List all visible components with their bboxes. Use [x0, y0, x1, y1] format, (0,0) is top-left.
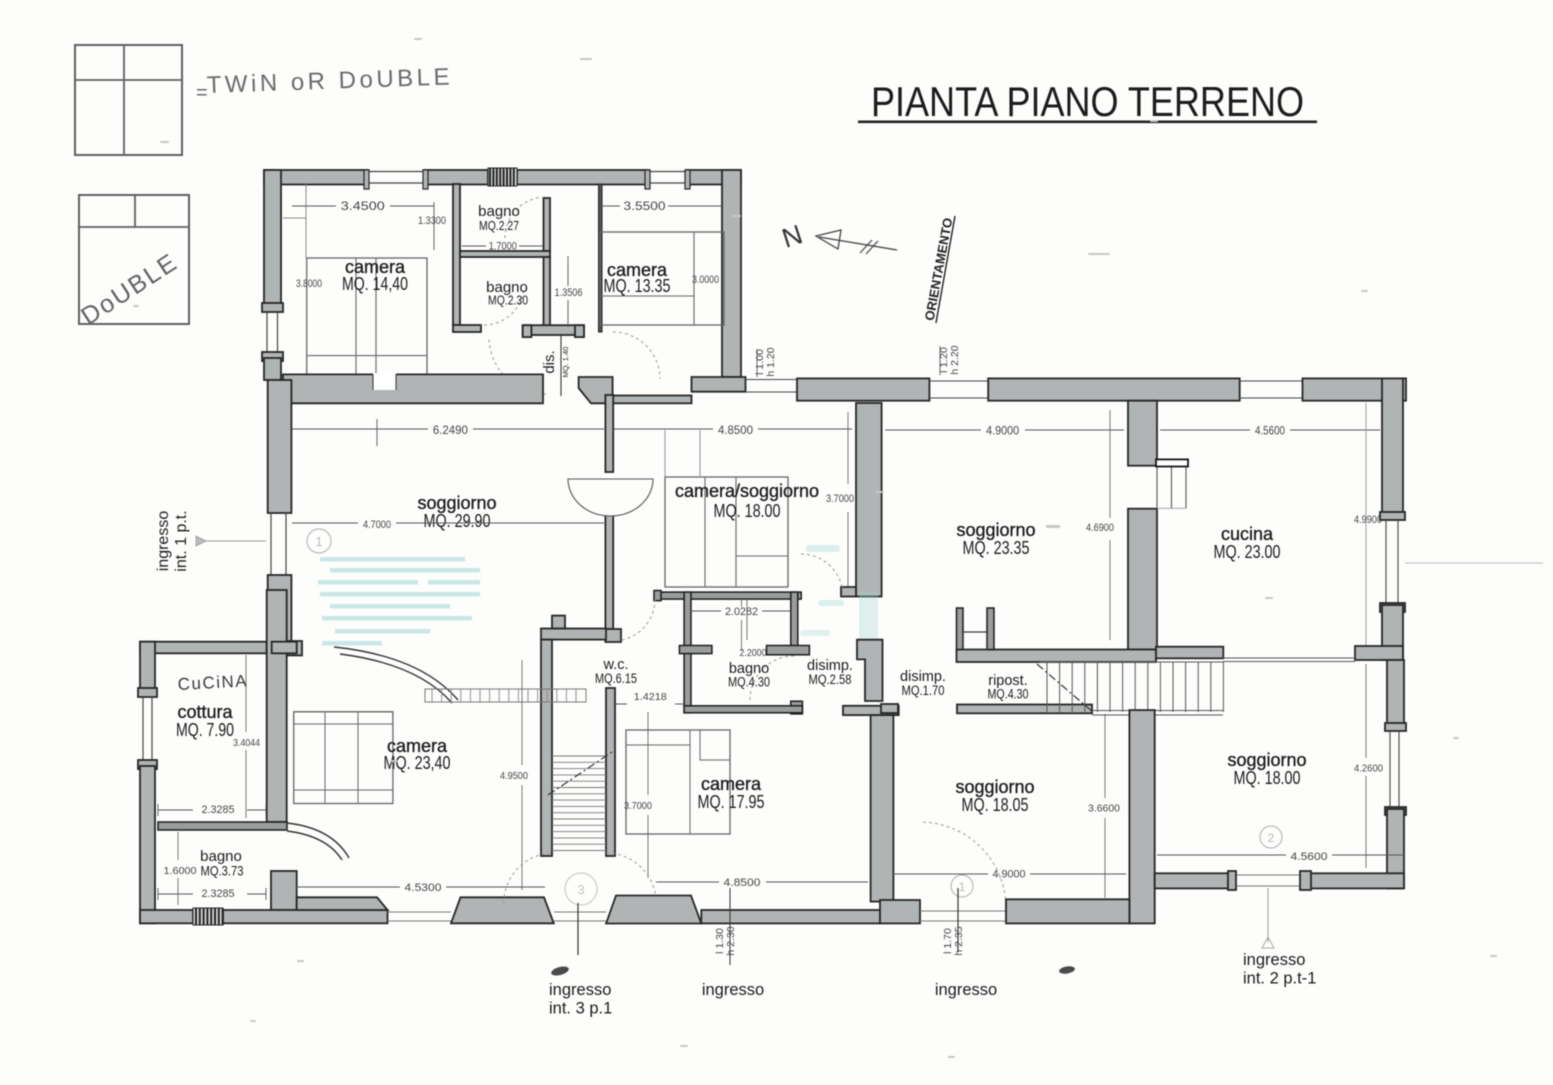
- svg-text:3.0000: 3.0000: [692, 274, 719, 286]
- svg-text:3.6600: 3.6600: [1088, 803, 1120, 815]
- svg-text:int. 1 p.t.: int. 1 p.t.: [173, 510, 190, 571]
- svg-text:MQ. 18.00: MQ. 18.00: [1234, 768, 1301, 788]
- svg-text:MQ. 23,40: MQ. 23,40: [384, 753, 451, 773]
- svg-text:camera/soggiorno: camera/soggiorno: [675, 481, 819, 501]
- svg-text:3.8000: 3.8000: [296, 278, 322, 290]
- svg-text:h 2.30: h 2.30: [725, 926, 737, 955]
- svg-text:MQ.2.58: MQ.2.58: [809, 672, 852, 687]
- svg-text:MQ.2.30: MQ.2.30: [488, 293, 528, 308]
- svg-text:MQ. 23.00: MQ. 23.00: [1214, 542, 1281, 562]
- svg-text:ingresso: ingresso: [549, 981, 611, 999]
- svg-text:4.9000: 4.9000: [986, 424, 1019, 438]
- svg-text:3.7000: 3.7000: [624, 800, 652, 812]
- svg-text:MQ.4.30: MQ.4.30: [988, 687, 1029, 702]
- svg-text:soggiorno: soggiorno: [1227, 750, 1306, 770]
- svg-text:4.5600: 4.5600: [1291, 851, 1328, 863]
- svg-text:4.2600: 4.2600: [1354, 763, 1383, 775]
- svg-text:MQ. 7.90: MQ. 7.90: [176, 720, 234, 740]
- svg-text:1.7000: 1.7000: [489, 241, 517, 253]
- svg-text:ingresso: ingresso: [935, 981, 997, 999]
- svg-text:3.7000: 3.7000: [826, 493, 854, 505]
- svg-text:1.4218: 1.4218: [634, 691, 667, 703]
- svg-text:3.4044: 3.4044: [233, 737, 260, 749]
- svg-text:4.9900: 4.9900: [1354, 514, 1382, 526]
- svg-text:camera: camera: [701, 774, 762, 794]
- svg-text:2.2000: 2.2000: [740, 648, 767, 659]
- svg-text:3: 3: [577, 882, 584, 897]
- svg-text:MQ. 17.95: MQ. 17.95: [698, 792, 765, 812]
- svg-text:MQ. 29.90: MQ. 29.90: [424, 511, 491, 531]
- svg-text:h 2.20: h 2.20: [949, 345, 961, 374]
- svg-text:ingresso: ingresso: [1243, 951, 1305, 969]
- svg-text:ingresso: ingresso: [155, 511, 172, 572]
- svg-text:4.8500: 4.8500: [718, 423, 753, 437]
- svg-text:soggiorno: soggiorno: [417, 493, 496, 513]
- svg-text:int. 2 p.t-1: int. 2 p.t-1: [1243, 970, 1316, 988]
- svg-text:ingresso: ingresso: [702, 981, 764, 999]
- svg-text:2.3285: 2.3285: [202, 888, 235, 900]
- svg-text:dis.: dis.: [541, 350, 558, 373]
- svg-text:1: 1: [959, 880, 966, 894]
- svg-text:4.7000: 4.7000: [363, 519, 391, 531]
- svg-text:4.9500: 4.9500: [500, 770, 528, 782]
- svg-text:3.4500: 3.4500: [341, 199, 385, 213]
- svg-text:h 1.20: h 1.20: [765, 347, 777, 376]
- svg-text:MQ. 14,40: MQ. 14,40: [342, 274, 408, 294]
- svg-text:PIANTA PIANO TERRENO: PIANTA PIANO TERRENO: [871, 78, 1304, 125]
- svg-text:4.6900: 4.6900: [1086, 522, 1114, 534]
- svg-text:1: 1: [315, 534, 322, 549]
- svg-text:4.8500: 4.8500: [724, 877, 761, 889]
- svg-text:h 2.35: h 2.35: [953, 926, 965, 955]
- svg-text:4.5300: 4.5300: [405, 882, 442, 894]
- svg-text:2.0282: 2.0282: [725, 606, 758, 618]
- svg-text:MQ.4.30: MQ.4.30: [728, 675, 770, 690]
- svg-text:MQ. 13.35: MQ. 13.35: [604, 276, 671, 296]
- svg-text:MQ.2.27: MQ.2.27: [479, 218, 519, 233]
- svg-text:soggiorno: soggiorno: [955, 777, 1034, 797]
- svg-text:MQ.3.73: MQ.3.73: [201, 863, 244, 879]
- svg-text:CuCiNA: CuCiNA: [177, 671, 248, 694]
- svg-text:3.5500: 3.5500: [624, 199, 666, 213]
- svg-text:cottura: cottura: [177, 702, 233, 722]
- svg-text:6.2490: 6.2490: [433, 423, 468, 437]
- svg-text:2: 2: [1268, 831, 1275, 845]
- svg-text:MQ. 18.05: MQ. 18.05: [962, 795, 1029, 815]
- svg-text:4.5600: 4.5600: [1255, 424, 1285, 438]
- svg-text:int. 3 p.1: int. 3 p.1: [549, 1000, 612, 1018]
- svg-text:1.3506: 1.3506: [555, 287, 583, 299]
- svg-text:1.6000: 1.6000: [164, 865, 197, 877]
- svg-text:MQ. 23.35: MQ. 23.35: [963, 538, 1030, 558]
- svg-text:MQ.6.15: MQ.6.15: [595, 671, 637, 686]
- svg-text:1.3300: 1.3300: [418, 215, 446, 227]
- svg-text:MQ. 1.40: MQ. 1.40: [561, 347, 570, 378]
- svg-text:MQ. 18.00: MQ. 18.00: [714, 501, 781, 521]
- svg-text:cucina: cucina: [1221, 524, 1274, 544]
- svg-text:MQ.1.70: MQ.1.70: [902, 683, 945, 698]
- svg-text:2.3285: 2.3285: [202, 804, 235, 816]
- svg-text:soggiorno: soggiorno: [956, 520, 1035, 540]
